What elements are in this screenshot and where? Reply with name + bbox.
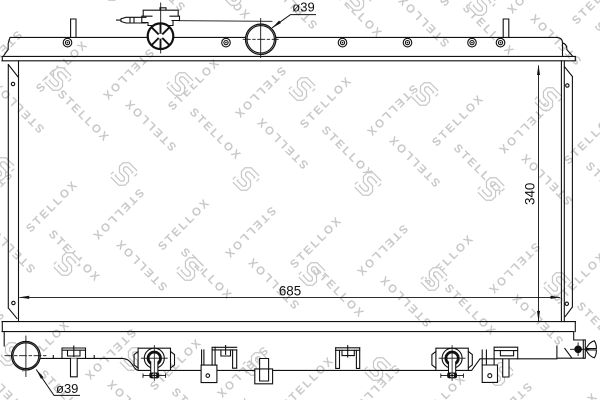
svg-text:685: 685 [279,283,301,298]
svg-text:ø39: ø39 [292,0,314,15]
svg-text:ø39: ø39 [56,381,78,396]
svg-text:340: 340 [523,183,538,205]
